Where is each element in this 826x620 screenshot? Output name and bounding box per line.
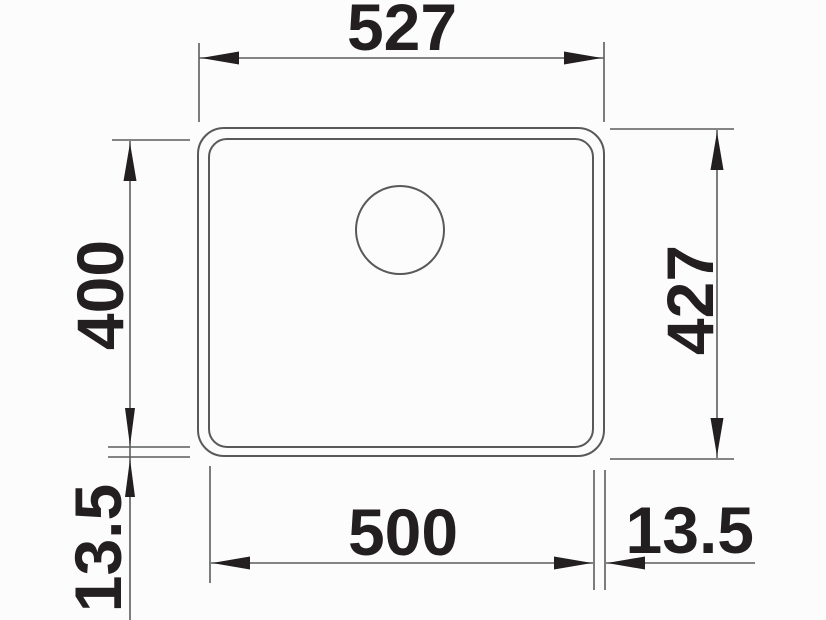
dim-outer-depth-arrow-top-icon [711,132,724,170]
dim-outer-width: 527 [199,0,604,122]
dim-label-rim-bottom-right: 13.5 [626,493,754,567]
dim-label-rim-bottom-left: 13.5 [61,484,135,612]
dim-outer-depth: 427 [610,129,734,459]
dim-rim-bottom-left: 13.5 [61,457,190,612]
dim-label-inner-depth: 400 [63,240,137,350]
dim-outer-width-arrow-left-icon [201,52,239,65]
dim-inner-width: 500 [210,466,594,590]
dim-inner-depth-arrow-top-icon [124,143,137,181]
dim-label-outer-depth: 427 [653,245,727,355]
sink-outlines [198,128,604,456]
dim-label-outer-width: 527 [347,0,457,64]
dim-inner-width-arrow-right-icon [554,557,592,570]
sink-outer-outline [198,128,604,456]
dim-label-inner-width: 500 [348,495,458,569]
sink-technical-drawing: 527 400 427 13.5 [0,0,826,620]
drawing-canvas: 527 400 427 13.5 [0,0,826,620]
dim-rim-bottom-right: 13.5 [605,470,755,590]
dim-inner-width-arrow-left-icon [212,557,250,570]
dim-outer-width-arrow-right-icon [564,52,602,65]
dim-outer-depth-arrow-bottom-icon [711,418,724,456]
drain-hole [356,186,444,274]
dim-inner-depth-arrow-bottom-icon [125,408,135,446]
